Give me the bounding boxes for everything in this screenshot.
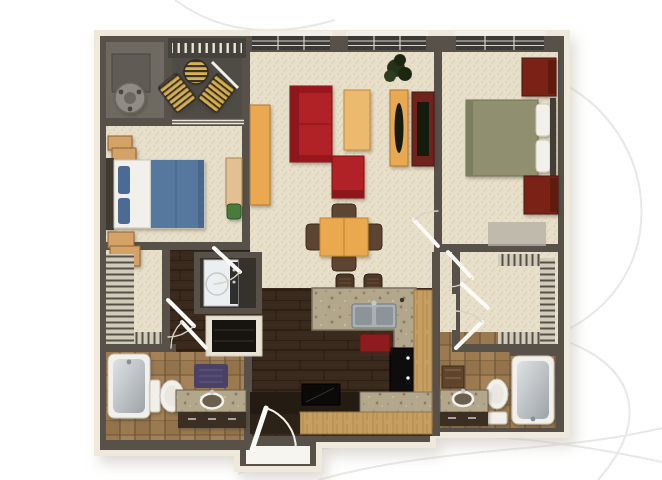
console-table [390,90,408,166]
refrigerator [390,348,414,392]
floor-plan-canvas [0,0,662,480]
dining-table [320,218,368,256]
floor-plan [0,0,662,480]
balcony-slider-sill [168,118,248,126]
coffee-table [344,90,370,150]
bathtub [108,354,150,418]
bathtub-right [512,356,554,424]
desk [226,158,242,219]
stove [302,384,340,405]
pantry-closet [206,316,262,356]
closet-shelves [106,254,134,344]
living-window-left [250,31,332,50]
living-window-right [346,31,428,50]
patio-table [184,60,208,84]
vanity [176,390,246,428]
counter-granite [360,392,432,414]
foot-rug [488,222,546,246]
cabinet-face-bottom [300,412,432,434]
sink [201,394,223,409]
closet-shelves-right [540,258,555,344]
bath-mat [194,364,228,388]
sofa-table [250,105,270,205]
dining-chair-bottom [332,254,356,271]
nightstand-bottom-cherry [524,176,558,214]
kitchen-rug-red [360,334,390,352]
hvac-unit [115,83,145,113]
balcony-railing [168,38,246,58]
utility-room [112,54,150,113]
armchair [332,156,364,198]
sink-right [453,392,473,406]
faucet [371,300,376,305]
sofa [290,86,332,162]
bedroom-right-window [454,31,546,50]
porch-floor [246,446,310,464]
toilet-right [486,379,508,424]
vanity-right [440,389,488,426]
tv-stand [412,92,434,166]
towel-bench [442,366,464,388]
bed-blue [106,158,204,230]
nightstand-top-cherry [522,58,556,96]
